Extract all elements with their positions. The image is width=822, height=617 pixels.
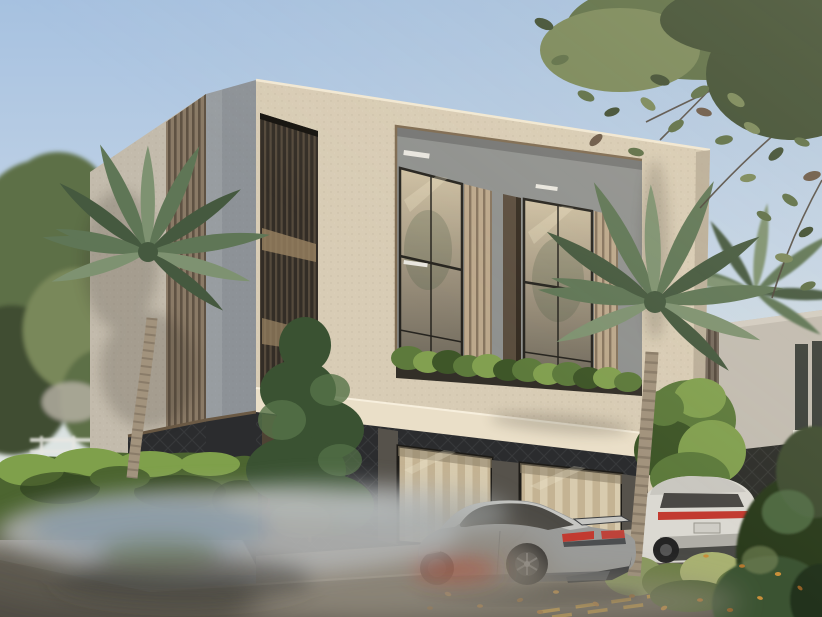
architectural-render-image xyxy=(0,0,822,617)
sunlight-wash xyxy=(0,0,822,617)
render-scene xyxy=(0,0,822,617)
